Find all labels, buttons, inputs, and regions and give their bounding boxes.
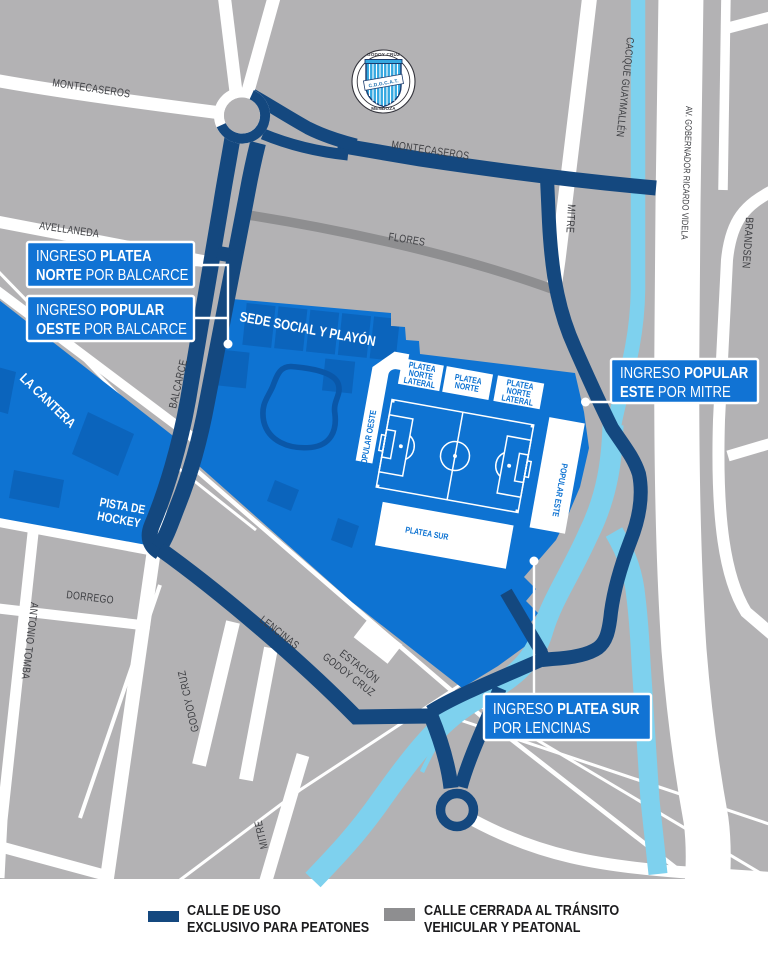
svg-text:ESTE POR MITRE: ESTE POR MITRE	[620, 384, 731, 401]
svg-text:NORTE POR BALCARCE: NORTE POR BALCARCE	[36, 267, 189, 284]
svg-text:VEHICULAR Y PEATONAL: VEHICULAR Y PEATONAL	[424, 918, 581, 935]
svg-text:INGRESO POPULAR: INGRESO POPULAR	[620, 365, 749, 382]
svg-text:MITRE: MITRE	[563, 204, 577, 234]
svg-text:INGRESO PLATEA: INGRESO PLATEA	[36, 248, 152, 265]
svg-text:INGRESO POPULAR: INGRESO POPULAR	[36, 302, 165, 319]
svg-text:CALLE DE USO: CALLE DE USO	[187, 901, 281, 918]
svg-text:GODOY CRUZ: GODOY CRUZ	[367, 52, 400, 57]
svg-text:EXCLUSIVO PARA PEATONES: EXCLUSIVO PARA PEATONES	[187, 918, 369, 935]
svg-text:INGRESO PLATEA SUR: INGRESO PLATEA SUR	[493, 701, 640, 718]
svg-text:CALLE CERRADA AL TRÁNSITO: CALLE CERRADA AL TRÁNSITO	[424, 901, 619, 918]
svg-text:POR LENCINAS: POR LENCINAS	[493, 720, 591, 737]
svg-text:OESTE POR BALCARCE: OESTE POR BALCARCE	[36, 321, 187, 338]
